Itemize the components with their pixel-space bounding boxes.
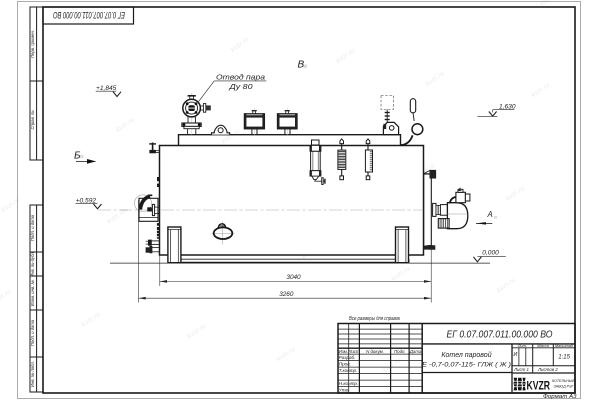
svg-text:Разраб.: Разраб.	[339, 355, 356, 360]
svg-text:N докум.: N докум.	[366, 349, 384, 354]
svg-text:ЕГ 0.07.007.011.00.000 ВО: ЕГ 0.07.007.011.00.000 ВО	[53, 10, 125, 20]
svg-text:Е -0,7-0,07-115- ГЛЖ ( Ж ): Е -0,7-0,07-115- ГЛЖ ( Ж )	[422, 362, 511, 369]
svg-text:Пров.: Пров.	[339, 362, 351, 367]
svg-text:Все размеры для справок: Все размеры для справок	[349, 316, 400, 322]
svg-text:Взам. инв. №: Взам. инв. №	[30, 280, 35, 306]
svg-text:Справ. №: Справ. №	[30, 110, 35, 129]
svg-text:И: И	[513, 352, 517, 358]
svg-text:Лит.: Лит.	[517, 343, 527, 348]
svg-text:Подп. и дата: Подп. и дата	[30, 319, 35, 346]
svg-text:Перв. примен.: Перв. примен.	[30, 30, 35, 58]
svg-text:ЕГ 0.07.007.011.00.000 ВО: ЕГ 0.07.007.011.00.000 ВО	[447, 328, 553, 340]
svg-text:Дата: Дата	[409, 349, 422, 354]
svg-text:Подп. и дата: Подп. и дата	[30, 214, 35, 241]
svg-text:Формат А3: Формат А3	[543, 394, 578, 400]
svg-text:Н.контр.: Н.контр.	[339, 381, 358, 386]
svg-text:Листов 2: Листов 2	[537, 367, 558, 372]
svg-text:Инв. № подл.: Инв. № подл.	[30, 361, 35, 387]
svg-text:Инв. № дубл.: Инв. № дубл.	[30, 251, 35, 277]
svg-text:Масса: Масса	[537, 343, 549, 348]
svg-text:3040: 3040	[286, 274, 301, 281]
svg-text:Утв.: Утв.	[339, 388, 349, 393]
svg-text:Б: Б	[74, 151, 81, 162]
svg-text:Отвод пара: Отвод пара	[216, 72, 265, 81]
svg-text:В: В	[298, 60, 305, 71]
svg-text:А: А	[487, 210, 493, 219]
svg-text:Лист: Лист	[347, 349, 360, 354]
svg-text:Масштаб: Масштаб	[555, 343, 574, 348]
svg-text:ЗАВОД РЭГ: ЗАВОД РЭГ	[554, 384, 575, 388]
svg-text:Ду 80: Ду 80	[228, 82, 253, 91]
svg-text:1,630: 1,630	[499, 103, 516, 110]
svg-text:1:15: 1:15	[558, 355, 570, 361]
svg-text:Лист 1: Лист 1	[513, 367, 530, 372]
svg-text:0,000: 0,000	[482, 249, 499, 256]
svg-text:Котел паровой: Котел паровой	[441, 351, 491, 359]
svg-text:Т.контр.: Т.контр.	[339, 368, 358, 373]
svg-text:КОТЕЛЬНЫЙ: КОТЕЛЬНЫЙ	[552, 379, 575, 383]
svg-text:3260: 3260	[279, 291, 294, 298]
svg-text:Изм.: Изм.	[339, 349, 348, 354]
svg-text:KVZR: KVZR	[527, 379, 551, 393]
svg-text:Подп.: Подп.	[394, 349, 406, 354]
